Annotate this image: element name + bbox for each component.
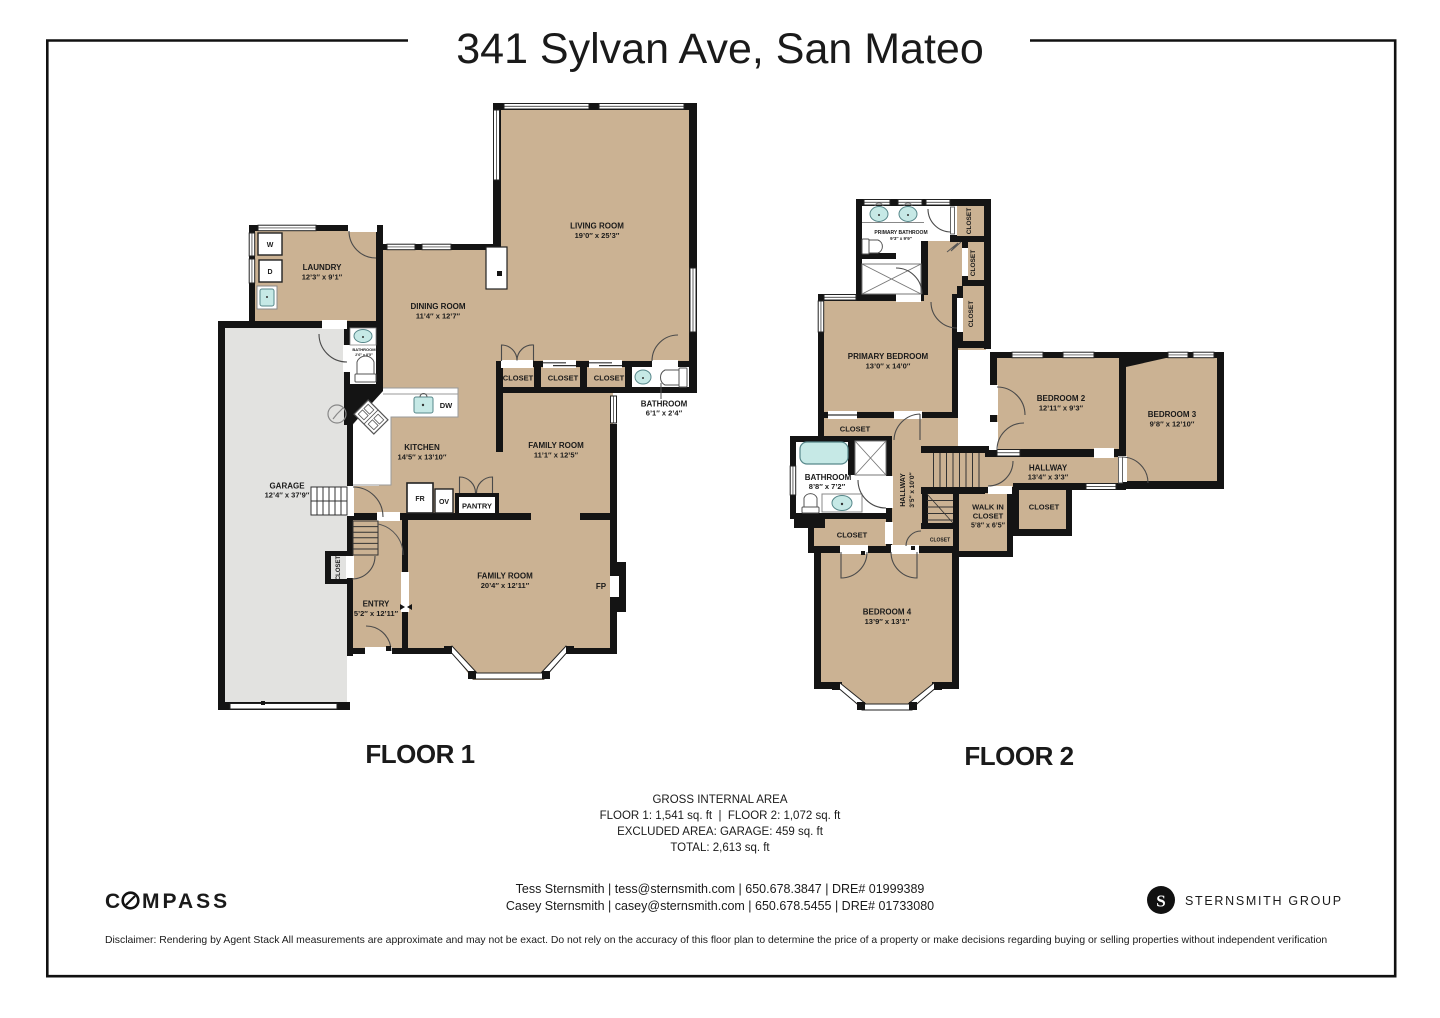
svg-text:BEDROOM 4: BEDROOM 4 (863, 608, 912, 617)
svg-text:FAMILY ROOM: FAMILY ROOM (528, 441, 584, 450)
svg-text:11’1″ x 12’5″: 11’1″ x 12’5″ (534, 451, 579, 460)
svg-text:D: D (267, 269, 272, 276)
svg-text:3’5″ x 10’0″: 3’5″ x 10’0″ (909, 472, 916, 507)
svg-text:CLOSET: CLOSET (594, 374, 625, 383)
svg-text:12’3″ x 9’1″: 12’3″ x 9’1″ (302, 273, 343, 282)
svg-text:W: W (267, 242, 274, 249)
svg-text:FR: FR (415, 496, 424, 503)
svg-text:14’5″ x 13’10″: 14’5″ x 13’10″ (398, 453, 447, 462)
svg-text:CLOSET: CLOSET (548, 374, 579, 383)
svg-text:OV: OV (439, 499, 449, 506)
svg-text:LAUNDRY: LAUNDRY (303, 263, 342, 272)
svg-text:CLOSET: CLOSET (503, 374, 534, 383)
svg-text:9’8″ x 12’10″: 9’8″ x 12’10″ (1150, 420, 1195, 429)
svg-text:LIVING ROOM: LIVING ROOM (570, 222, 624, 231)
svg-text:341 Sylvan Ave, San Mateo: 341 Sylvan Ave, San Mateo (456, 25, 984, 73)
svg-text:13’0″ x 14’0″: 13’0″ x 14’0″ (866, 362, 911, 371)
svg-text:HALLWAY: HALLWAY (1029, 464, 1068, 473)
svg-text:CLOSET: CLOSET (840, 425, 871, 434)
svg-text:13’4″ x 3’3″: 13’4″ x 3’3″ (1028, 473, 1069, 482)
svg-text:STERNSMITH GROUP: STERNSMITH GROUP (1185, 894, 1343, 908)
svg-text:FP: FP (596, 582, 607, 591)
svg-text:BEDROOM 2: BEDROOM 2 (1037, 394, 1086, 403)
svg-text:CLOSET: CLOSET (837, 531, 868, 540)
svg-text:CLOSET: CLOSET (930, 538, 950, 544)
svg-text:C: C (105, 890, 123, 913)
svg-text:PANTRY: PANTRY (462, 502, 492, 511)
svg-text:DINING ROOM: DINING ROOM (410, 302, 465, 311)
svg-text:S: S (1156, 892, 1165, 911)
svg-text:BATHROOM: BATHROOM (805, 473, 852, 482)
svg-text:KITCHEN: KITCHEN (404, 443, 440, 452)
svg-text:5’2″ x 12’11″: 5’2″ x 12’11″ (354, 609, 399, 618)
svg-text:20’4″ x 12’11″: 20’4″ x 12’11″ (481, 581, 530, 590)
svg-text:12’11″ x 9’3″: 12’11″ x 9’3″ (1039, 404, 1084, 413)
svg-text:CLOSET: CLOSET (973, 512, 1004, 521)
svg-text:FLOOR 1: 1,541 sq. ft | FLOO: FLOOR 1: 1,541 sq. ft | FLOOR 2: 1,072 s… (600, 810, 842, 822)
svg-text:Casey Sternsmith | casey@stern: Casey Sternsmith | casey@sternsmith.com … (506, 899, 934, 913)
svg-text:BATHROOM: BATHROOM (641, 400, 688, 409)
svg-text:BATHROOM: BATHROOM (352, 347, 376, 352)
svg-text:HALLWAY: HALLWAY (900, 473, 907, 507)
svg-text:13’9″ x 13’1″: 13’9″ x 13’1″ (865, 617, 910, 626)
svg-text:8’8″ x 7’2″: 8’8″ x 7’2″ (809, 482, 846, 491)
svg-text:CLOSET: CLOSET (1029, 503, 1060, 512)
svg-text:9’3″ x 9’9″: 9’3″ x 9’9″ (890, 236, 913, 241)
svg-text:CLOSET: CLOSET (966, 208, 973, 234)
svg-text:5’8″ x 6’5″: 5’8″ x 6’5″ (971, 523, 1006, 530)
svg-text:CLOSET: CLOSET (968, 301, 975, 327)
svg-text:FAMILY ROOM: FAMILY ROOM (477, 572, 533, 581)
svg-text:11’4″ x 12’7″: 11’4″ x 12’7″ (416, 312, 461, 321)
svg-text:WALK IN: WALK IN (972, 503, 1004, 512)
svg-text:TOTAL: 2,613 sq. ft: TOTAL: 2,613 sq. ft (670, 842, 770, 854)
svg-text:FLOOR 2: FLOOR 2 (964, 741, 1073, 771)
svg-text:MPASS: MPASS (142, 890, 230, 913)
svg-text:CLOSET: CLOSET (970, 250, 977, 276)
svg-text:GARAGE: GARAGE (269, 482, 305, 491)
svg-text:ENTRY: ENTRY (363, 600, 390, 609)
svg-text:EXCLUDED AREA: GARAGE: 459 sq.: EXCLUDED AREA: GARAGE: 459 sq. ft (617, 826, 824, 838)
svg-text:FLOOR 1: FLOOR 1 (365, 739, 474, 769)
svg-text:Disclaimer: Rendering by Agent: Disclaimer: Rendering by Agent Stack All… (105, 935, 1327, 946)
svg-text:PRIMARY BEDROOM: PRIMARY BEDROOM (848, 352, 929, 361)
svg-text:6’1″ x 2’4″: 6’1″ x 2’4″ (646, 409, 683, 418)
svg-text:CLOSET: CLOSET (336, 556, 342, 581)
svg-text:12’4″ x 37’9″: 12’4″ x 37’9″ (265, 491, 310, 500)
svg-text:BEDROOM 3: BEDROOM 3 (1148, 410, 1197, 419)
svg-text:GROSS INTERNAL AREA: GROSS INTERNAL AREA (652, 794, 787, 806)
svg-text:Tess Sternsmith | tess@sternsm: Tess Sternsmith | tess@sternsmith.com | … (516, 882, 925, 896)
svg-text:19’0″ x 25’3″: 19’0″ x 25’3″ (575, 231, 620, 240)
svg-text:2’6″ x 8’5″: 2’6″ x 8’5″ (355, 353, 373, 357)
svg-text:DW: DW (440, 401, 453, 410)
